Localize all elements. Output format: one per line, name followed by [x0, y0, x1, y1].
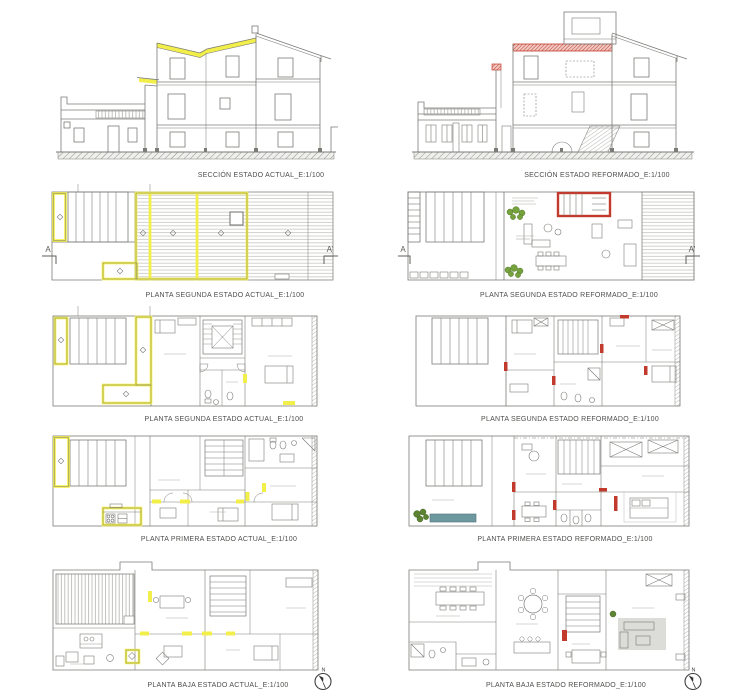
- plant: [610, 611, 616, 617]
- water-feature: [430, 514, 476, 522]
- reform-markers: [504, 315, 648, 385]
- section-marker-a-label: A: [45, 245, 51, 254]
- north-label: N: [322, 668, 326, 674]
- planta-segunda-reformado-drawing: [406, 306, 702, 408]
- panel-planta-primera-reformado: PLANTA PRIMERA ESTADO REFORMADO_E:1/100: [396, 426, 702, 542]
- planta-segunda-actual-drawing: [40, 306, 340, 408]
- planta-segunda-cubierta-reformado-drawing: A A': [396, 184, 702, 284]
- north-arrow-icon: N: [312, 666, 334, 692]
- planta-segunda-cubierta-actual-drawing: A A': [40, 184, 340, 284]
- panel-caption: PLANTA SEGUNDA ESTADO ACTUAL_E:1/100: [146, 290, 305, 301]
- panel-seccion-estado-actual: SECCIÓN ESTADO ACTUAL_E:1/100: [50, 6, 342, 178]
- panel-planta-segunda-cubierta-reformado: A A' PLANTA SEGUNDA ESTADO REFORMADO_E:1…: [396, 184, 702, 298]
- planta-primera-reformado-drawing: [396, 426, 702, 528]
- panel-caption: PLANTA BAJA ESTADO ACTUAL_E:1/100: [147, 680, 288, 691]
- panel-caption: PLANTA SEGUNDA ESTADO REFORMADO_E:1/100: [481, 414, 659, 425]
- panel-planta-baja-reformado: PLANTA BAJA ESTADO REFORMADO_E:1/100 N: [396, 558, 702, 688]
- panel-caption: SECCIÓN ESTADO REFORMADO_E:1/100: [524, 170, 670, 181]
- panel-seccion-estado-reformado: SECCIÓN ESTADO REFORMADO_E:1/100: [406, 6, 702, 178]
- planta-primera-actual-drawing: [40, 426, 340, 528]
- section-marker-a-prime-label: A': [689, 245, 696, 254]
- panel-caption: PLANTA PRIMERA ESTADO ACTUAL_E:1/100: [141, 534, 297, 545]
- north-arrow-icon: N: [682, 666, 704, 692]
- drawing-sheet: SECCIÓN ESTADO ACTUAL_E:1/100: [0, 0, 729, 696]
- panel-caption: PLANTA SEGUNDA ESTADO ACTUAL_E:1/100: [145, 414, 304, 425]
- panel-planta-primera-actual: PLANTA PRIMERA ESTADO ACTUAL_E:1/100: [40, 426, 340, 542]
- panel-caption: SECCIÓN ESTADO ACTUAL_E:1/100: [198, 170, 325, 181]
- seccion-actual-drawing: [50, 6, 342, 164]
- panel-caption: PLANTA BAJA ESTADO REFORMADO_E:1/100: [486, 680, 646, 691]
- planter-vegetation: [505, 207, 525, 278]
- panel-planta-segunda-actual: PLANTA SEGUNDA ESTADO ACTUAL_E:1/100: [40, 306, 340, 422]
- panel-planta-segunda-cubierta-actual: A A' PLANTA SEGUNDA ESTADO ACTUAL_E:1/10…: [40, 184, 340, 298]
- reform-marker: [562, 630, 567, 641]
- panel-planta-baja-actual: PLANTA BAJA ESTADO ACTUAL_E:1/100 N: [40, 558, 340, 688]
- north-label: N: [692, 668, 696, 674]
- panel-caption: PLANTA SEGUNDA ESTADO REFORMADO_E:1/100: [480, 290, 658, 301]
- section-marker-a-prime-label: A': [327, 245, 334, 254]
- planta-baja-actual-drawing: [40, 558, 340, 674]
- seccion-reformado-drawing: [406, 6, 702, 164]
- planta-baja-reformado-drawing: [396, 558, 702, 674]
- panel-planta-segunda-reformado: PLANTA SEGUNDA ESTADO REFORMADO_E:1/100: [406, 306, 702, 422]
- section-marker-a-label: A: [400, 245, 406, 254]
- patio-vegetation: [414, 509, 429, 522]
- panel-caption: PLANTA PRIMERA ESTADO REFORMADO_E:1/100: [477, 534, 652, 545]
